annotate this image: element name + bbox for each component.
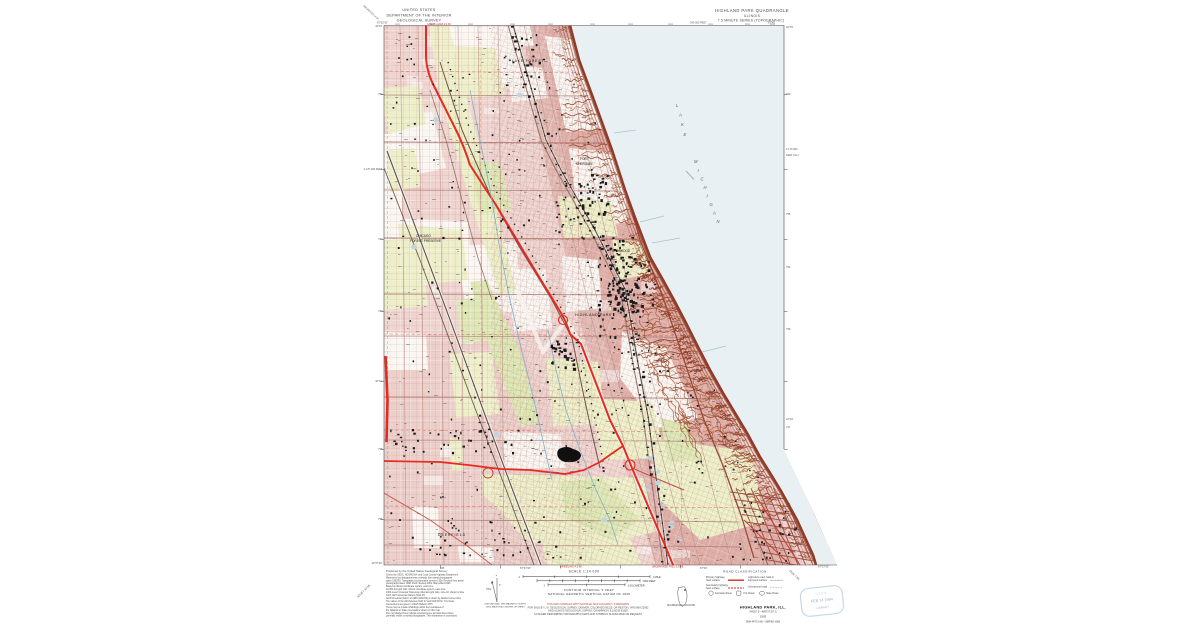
svg-text:745: 745 bbox=[786, 502, 791, 506]
svg-text:HIGHLAND PARK QUADRANGLE: HIGHLAND PARK QUADRANGLE bbox=[715, 8, 789, 13]
svg-text:87°47'30": 87°47'30" bbox=[520, 566, 531, 570]
svg-text:1°: 1° bbox=[499, 584, 501, 587]
svg-text:FOREST PRESERVE: FOREST PRESERVE bbox=[410, 239, 441, 243]
svg-text:DEERFIELD: DEERFIELD bbox=[438, 533, 466, 537]
svg-text:improved surface: improved surface bbox=[748, 579, 768, 582]
svg-text:UTM GRID AND 1993 MAGNETIC NOR: UTM GRID AND 1993 MAGNETIC NORTH bbox=[484, 603, 526, 606]
svg-text:755: 755 bbox=[786, 212, 791, 216]
svg-text:2 170 000 FEET: 2 170 000 FEET bbox=[364, 167, 383, 171]
svg-text:760: 760 bbox=[378, 309, 383, 313]
svg-text:DEPARTMENT OF THE INTERIOR: DEPARTMENT OF THE INTERIOR bbox=[386, 14, 451, 18]
svg-text:GREAT LAKES 2.4 MI.: GREAT LAKES 2.4 MI. bbox=[427, 23, 452, 26]
svg-text:Produced by the United States: Produced by the United States Geological… bbox=[386, 569, 448, 573]
svg-text:A FOLDER DESCRIBING TOPOGRAPHI: A FOLDER DESCRIBING TOPOGRAPHIC MAPS AND… bbox=[534, 613, 643, 616]
svg-text:Control by USGS, NOS/NOAA, and: Control by USGS, NOS/NOAA, and Cook Coun… bbox=[386, 573, 458, 576]
svg-text:DMA 4470 II NE—SERIES V863: DMA 4470 II NE—SERIES V863 bbox=[746, 620, 781, 623]
svg-text:1 KILOMETER: 1 KILOMETER bbox=[628, 584, 645, 588]
svg-text:State Route: State Route bbox=[766, 592, 779, 595]
svg-text:E: E bbox=[684, 132, 687, 137]
svg-text:FEET (ILL): FEET (ILL) bbox=[786, 153, 799, 157]
svg-text:752: 752 bbox=[786, 265, 791, 269]
svg-text:SCALE 1:24 000: SCALE 1:24 000 bbox=[569, 570, 600, 574]
svg-text:2 170 000: 2 170 000 bbox=[786, 147, 798, 151]
svg-text:hard surface: hard surface bbox=[706, 587, 721, 590]
svg-text:ROAD CLASSIFICATION: ROAD CLASSIFICATION bbox=[723, 570, 766, 574]
svg-text:42°10': 42°10' bbox=[786, 417, 794, 421]
svg-text:DECLINATION AT CENTER OF SHEET: DECLINATION AT CENTER OF SHEET bbox=[486, 605, 525, 608]
svg-text:There may be private inholding: There may be private inholdings within t… bbox=[386, 606, 444, 609]
svg-text:87°40': 87°40' bbox=[700, 566, 708, 570]
svg-text:7000 FEET: 7000 FEET bbox=[643, 579, 657, 583]
svg-text:Unimproved road: Unimproved road bbox=[748, 586, 768, 589]
svg-text:NATIONAL GEODETIC VERTICAL DAT: NATIONAL GEODETIC VERTICAL DATUM OF 1929 bbox=[548, 592, 630, 596]
svg-text:747: 747 bbox=[786, 425, 791, 429]
svg-text:87°52'30": 87°52'30" bbox=[377, 21, 388, 25]
svg-text:Planimetry by photogrammetric: Planimetry by photogrammetric methods fr… bbox=[386, 576, 453, 579]
svg-text:756: 756 bbox=[378, 517, 383, 521]
svg-text:Based on Illinois coordinate s: Based on Illinois coordinate system, eas… bbox=[386, 585, 434, 588]
svg-text:ILLINOIS: ILLINOIS bbox=[744, 14, 761, 18]
svg-text:Fine red dashed lines indicate: Fine red dashed lines indicate selected … bbox=[386, 612, 454, 615]
svg-text:1000-meter Universal Transvers: 1000-meter Universal Transverse Mercator… bbox=[386, 591, 465, 594]
svg-text:42°10': 42°10' bbox=[375, 379, 383, 383]
svg-text:LAKE FOREST: LAKE FOREST bbox=[512, 59, 544, 63]
svg-text:M: M bbox=[694, 159, 698, 164]
svg-text:HIGHWOOD: HIGHWOOD bbox=[612, 249, 631, 253]
svg-text:1927 North American Datum (NAD: 1927 North American Datum (NAD 27) bbox=[386, 594, 425, 597]
svg-text:the National or State reservat: the National or State reservations shown… bbox=[386, 609, 441, 612]
svg-text:K: K bbox=[681, 122, 684, 127]
svg-text:generally visible on aerial ph: generally visible on aerial photographs.… bbox=[386, 615, 458, 618]
svg-text:0°51': 0°51' bbox=[486, 588, 492, 591]
svg-text:HIGHLAND PARK: HIGHLAND PARK bbox=[575, 313, 612, 317]
svg-text:10,000-foot grid ticks: Illino: 10,000-foot grid ticks: Illinois coordin… bbox=[386, 588, 446, 591]
svg-text:Interstate Route: Interstate Route bbox=[715, 592, 733, 595]
svg-text:taken 1992/93. Topography by: taken 1992/93. Topography by planetable … bbox=[386, 579, 464, 582]
svg-text:GEOLOGICAL SURVEY: GEOLOGICAL SURVEY bbox=[397, 19, 442, 23]
svg-text:87°37'30": 87°37'30" bbox=[818, 565, 829, 569]
svg-text:North American Datum of 1983 (: North American Datum of 1983 (NAD 83) is… bbox=[386, 597, 462, 600]
svg-text:SHERIDAN: SHERIDAN bbox=[576, 162, 593, 166]
svg-text:87°45': 87°45' bbox=[768, 21, 776, 25]
svg-text:762: 762 bbox=[378, 237, 383, 241]
svg-text:photographs taken 1998. Field: photographs taken 1998. Field checked 19… bbox=[386, 582, 451, 585]
svg-text:intersections are given in USG: intersections are given in USGS Bulletin… bbox=[386, 603, 433, 606]
svg-text:42°07'30": 42°07'30" bbox=[371, 561, 382, 565]
svg-text:U.S. Route: U.S. Route bbox=[743, 592, 755, 595]
svg-text:1 MILE: 1 MILE bbox=[653, 575, 661, 579]
svg-text:FORT: FORT bbox=[580, 157, 589, 161]
svg-text:A: A bbox=[678, 113, 682, 118]
svg-text:758: 758 bbox=[378, 447, 383, 451]
svg-text:N4207.5—W8737.5/7.5: N4207.5—W8737.5/7.5 bbox=[749, 609, 777, 613]
svg-text:42°15': 42°15' bbox=[786, 25, 794, 29]
svg-text:750: 750 bbox=[786, 327, 791, 331]
svg-text:The values of the shift betwee: The values of the shift between NAD 27 a… bbox=[386, 600, 455, 603]
svg-text:760: 760 bbox=[786, 92, 791, 96]
svg-text:QUADRANGLE LOCATION: QUADRANGLE LOCATION bbox=[667, 604, 696, 607]
svg-text:1993: 1993 bbox=[760, 615, 767, 619]
svg-text:A: A bbox=[712, 211, 716, 216]
svg-text:CHICAGO: CHICAGO bbox=[416, 234, 431, 238]
svg-text:(MILWAUKEE AVE.) 1.8 MI.: (MILWAUKEE AVE.) 1.8 MI. bbox=[652, 565, 684, 569]
svg-text:UNITED STATES: UNITED STATES bbox=[402, 8, 435, 12]
svg-text:340 000 FEET: 340 000 FEET bbox=[690, 21, 707, 25]
svg-text:764: 764 bbox=[378, 92, 383, 96]
svg-text:42°15': 42°15' bbox=[375, 24, 383, 28]
svg-text:WHEELING 4.5 MI.: WHEELING 4.5 MI. bbox=[560, 565, 583, 569]
svg-text:hard surface: hard surface bbox=[706, 579, 721, 582]
svg-text:HIGHLAND PARK, ILL.: HIGHLAND PARK, ILL. bbox=[740, 605, 786, 610]
